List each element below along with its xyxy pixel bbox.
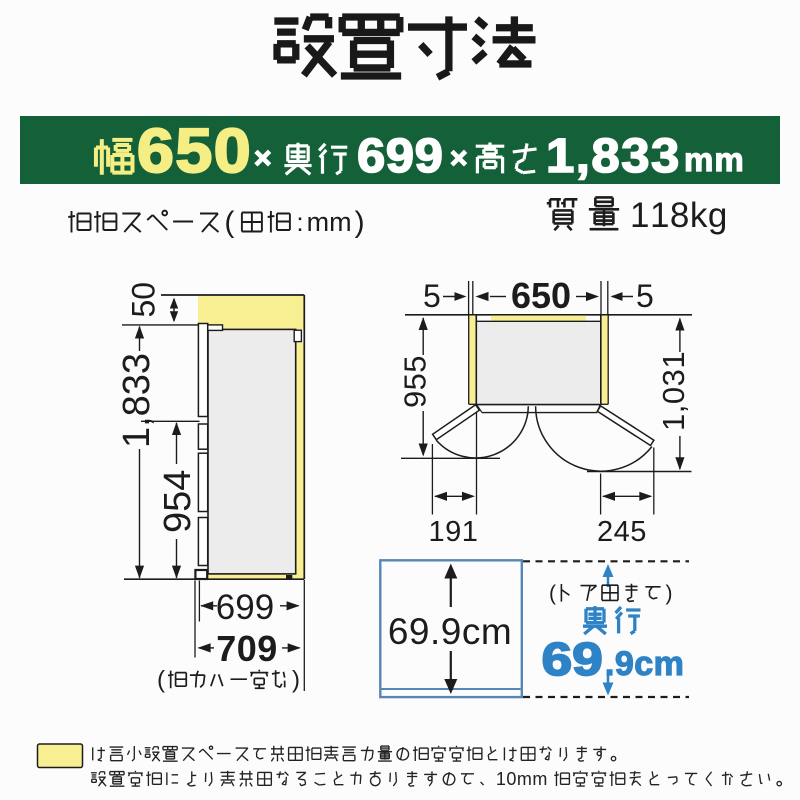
svg-text:9: 9 (398, 391, 433, 408)
svg-text:9: 9 (572, 633, 603, 685)
svg-text:m: m (307, 207, 330, 237)
svg-text:7: 7 (216, 628, 236, 669)
svg-text:3: 3 (116, 374, 158, 395)
svg-text:0: 0 (506, 769, 516, 789)
svg-text:0: 0 (656, 387, 691, 404)
svg-text:1: 1 (650, 196, 669, 235)
svg-text:1: 1 (462, 516, 478, 548)
svg-text:5: 5 (175, 117, 212, 186)
svg-text:(: ( (224, 206, 234, 239)
svg-text:(: ( (549, 582, 556, 605)
svg-text:,: , (576, 130, 590, 183)
svg-text:×: × (450, 142, 468, 175)
svg-text:.: . (430, 611, 440, 652)
svg-text:3: 3 (116, 353, 158, 374)
svg-text:5: 5 (636, 278, 654, 314)
svg-text:8: 8 (591, 130, 619, 183)
svg-text:6: 6 (388, 611, 409, 652)
svg-text:8: 8 (670, 196, 689, 235)
svg-text:g: g (708, 196, 727, 235)
svg-text:1: 1 (656, 351, 691, 368)
svg-text:0: 0 (126, 282, 162, 300)
svg-text:5: 5 (398, 355, 433, 372)
svg-text:1: 1 (496, 769, 506, 789)
svg-text:6: 6 (137, 117, 174, 186)
svg-text:): ) (292, 667, 300, 694)
svg-text:1: 1 (429, 516, 445, 548)
svg-text:(: ( (157, 667, 165, 694)
svg-text:1: 1 (656, 414, 691, 431)
svg-text:3: 3 (656, 369, 691, 386)
svg-text:9: 9 (386, 130, 414, 183)
svg-text:0: 0 (551, 275, 571, 316)
svg-text:c: c (462, 611, 481, 652)
svg-text:m: m (684, 141, 713, 178)
svg-text:1: 1 (546, 130, 574, 183)
svg-text:×: × (254, 142, 272, 175)
svg-text:9: 9 (409, 611, 430, 652)
svg-text:4: 4 (157, 470, 199, 491)
svg-text:m: m (714, 141, 743, 178)
svg-text:5: 5 (423, 278, 441, 314)
svg-text:6: 6 (511, 275, 531, 316)
svg-text:1: 1 (116, 427, 158, 448)
svg-text:): ) (665, 582, 672, 605)
svg-text:5: 5 (531, 275, 551, 316)
svg-text:c: c (634, 645, 653, 683)
svg-text:9: 9 (615, 645, 634, 683)
svg-text:5: 5 (126, 300, 162, 318)
svg-text:0: 0 (237, 628, 257, 669)
svg-text:9: 9 (415, 130, 443, 183)
svg-text:5: 5 (157, 491, 199, 512)
svg-text:m: m (532, 769, 547, 789)
svg-text:4: 4 (614, 516, 630, 548)
svg-text:6: 6 (357, 130, 385, 183)
svg-text:9: 9 (441, 611, 462, 652)
svg-text:,: , (656, 405, 691, 414)
svg-text:9: 9 (257, 628, 277, 669)
svg-text:m: m (654, 645, 684, 683)
svg-text:5: 5 (398, 373, 433, 390)
svg-text:): ) (355, 206, 365, 239)
svg-text:6: 6 (542, 633, 573, 685)
svg-text:9: 9 (445, 516, 461, 548)
svg-text:m: m (329, 207, 352, 237)
svg-text:.: . (605, 645, 614, 683)
svg-text:9: 9 (157, 512, 199, 533)
svg-text:3: 3 (651, 130, 679, 183)
svg-text:8: 8 (116, 395, 158, 416)
svg-text::: : (296, 207, 303, 237)
svg-text:1: 1 (630, 196, 649, 235)
svg-text:0: 0 (214, 117, 251, 186)
svg-text:9: 9 (235, 588, 254, 627)
svg-text:m: m (481, 611, 512, 652)
svg-text:m: m (517, 769, 532, 789)
svg-text:6: 6 (216, 588, 235, 627)
svg-text:3: 3 (621, 130, 649, 183)
svg-text:5: 5 (630, 516, 646, 548)
svg-text:2: 2 (597, 516, 613, 548)
svg-text:9: 9 (255, 588, 274, 627)
svg-text:k: k (690, 196, 708, 235)
